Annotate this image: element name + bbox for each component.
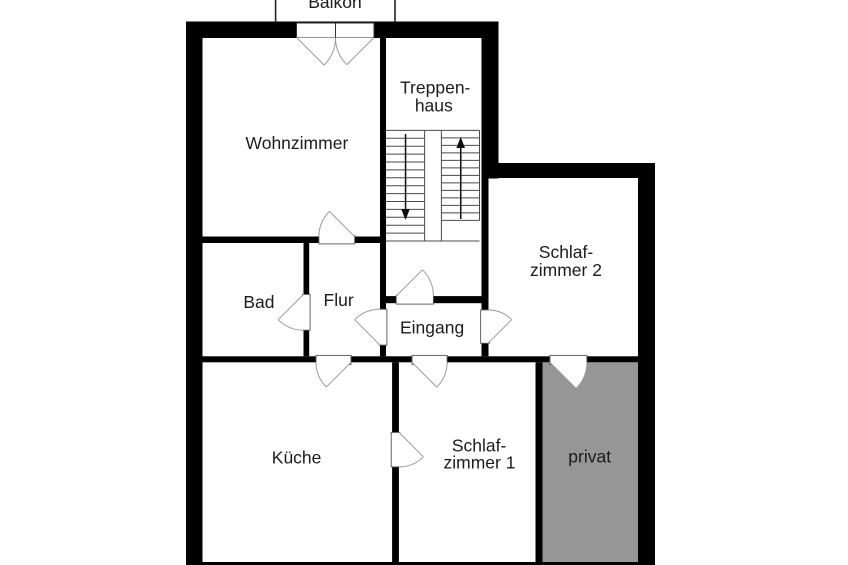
svg-text:Schlaf-: Schlaf- bbox=[539, 242, 594, 262]
svg-text:Eingang: Eingang bbox=[400, 317, 464, 337]
svg-text:zimmer 1: zimmer 1 bbox=[444, 452, 516, 472]
svg-text:haus: haus bbox=[415, 96, 453, 116]
svg-text:Küche: Küche bbox=[272, 447, 322, 467]
svg-text:Bad: Bad bbox=[243, 292, 274, 312]
svg-text:Balkon: Balkon bbox=[308, 0, 362, 12]
svg-text:Wohnzimmer: Wohnzimmer bbox=[246, 133, 349, 153]
svg-text:privat: privat bbox=[568, 446, 611, 466]
svg-text:zimmer 2: zimmer 2 bbox=[530, 260, 602, 280]
svg-text:Flur: Flur bbox=[324, 290, 354, 310]
